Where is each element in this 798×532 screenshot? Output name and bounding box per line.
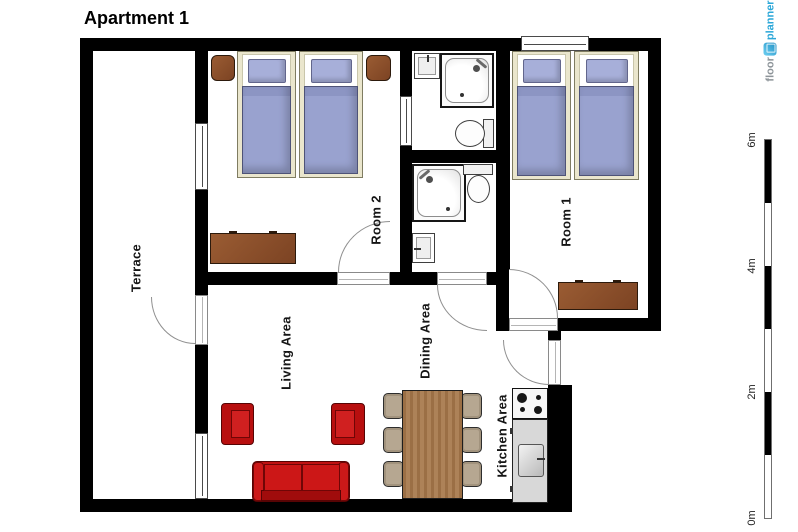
dining-chair [383, 461, 404, 487]
entry-door [548, 340, 561, 385]
single-bed [512, 51, 571, 180]
wall-terrace-3 [195, 345, 208, 433]
dresser-knob [229, 231, 237, 234]
single-bed [299, 51, 363, 178]
seat-cushion [264, 464, 302, 491]
cabinet-handle [510, 486, 513, 492]
ruler-segment [765, 455, 771, 518]
ruler-segment [765, 329, 771, 392]
seat-cushion [231, 410, 250, 438]
window-terrace-lower [195, 433, 208, 499]
door-swing-arc [503, 340, 549, 385]
seat-cushion [302, 464, 340, 491]
terrace-label: Terrace [129, 244, 144, 292]
mattress [579, 54, 634, 176]
sofa-back [261, 490, 341, 501]
dresser [558, 282, 638, 310]
faucet [537, 458, 545, 460]
pillow [311, 59, 353, 83]
armchair [221, 403, 254, 445]
ruler-segment [765, 140, 771, 203]
kitchen-sink [518, 444, 544, 477]
stove [512, 388, 548, 419]
shower-head-icon [473, 65, 480, 72]
kitchen-area-label: Kitchen Area [495, 394, 510, 477]
wall-room1-bottom-right [558, 318, 661, 331]
window-room1 [521, 36, 589, 51]
bathroom-sink [412, 233, 435, 263]
dining-area-label: Dining Area [418, 303, 433, 379]
dresser-knob [613, 280, 621, 283]
blanket [304, 86, 358, 174]
room1-door [509, 318, 558, 331]
shower-head-icon [426, 176, 433, 183]
dining-table [402, 390, 463, 499]
bathroom2-door [437, 272, 487, 285]
dining-chair [383, 393, 404, 419]
ruler-label-4m: 4m [746, 258, 758, 273]
floorplanner-logo[interactable]: floor planner [749, 8, 791, 74]
nightstand [366, 55, 391, 81]
mattress [242, 54, 291, 174]
wall-hall-2 [390, 272, 437, 285]
wall-terrace-1 [195, 51, 208, 123]
logo-text-floor: floor [764, 57, 776, 81]
seat-cushion [335, 410, 355, 438]
dresser [210, 233, 296, 264]
drain [460, 93, 464, 97]
wall-entry-stub [548, 331, 561, 340]
dining-chair [461, 393, 482, 419]
blanket [579, 86, 634, 176]
scale-ruler [764, 139, 772, 519]
nightstand [211, 55, 235, 81]
window-bathroom1 [400, 96, 412, 146]
living-area-label: Living Area [279, 316, 294, 390]
ruler-segment [765, 203, 771, 266]
wall-bath-right [496, 38, 510, 331]
ruler-label-6m: 6m [746, 132, 758, 147]
ruler-label-0m: 0m [746, 510, 758, 525]
faucet [427, 55, 429, 62]
room2-door [337, 272, 390, 285]
pillow [523, 59, 561, 83]
toilet [467, 175, 490, 203]
shower [412, 164, 466, 222]
bathroom-sink [414, 53, 440, 79]
wall-left [80, 38, 93, 512]
terrace-door [195, 295, 208, 345]
blanket [517, 86, 566, 176]
blanket [242, 86, 291, 174]
kitchen-counter [512, 419, 548, 503]
room2-label: Room 2 [369, 195, 384, 244]
room1-label: Room 1 [559, 197, 574, 246]
door-swing-arc [151, 297, 195, 344]
toilet-tank [463, 164, 493, 175]
wall-right-upper [648, 38, 661, 331]
armchair [331, 403, 365, 445]
wall-hall-1 [195, 272, 337, 285]
burner [534, 406, 542, 414]
floorplan-canvas: Apartment 1 floor planner [0, 0, 798, 532]
pillow [586, 59, 628, 83]
sofa [252, 461, 350, 502]
door-swing-arc [437, 285, 487, 331]
single-bed [237, 51, 296, 178]
dresser-knob [575, 280, 583, 283]
page-title: Apartment 1 [84, 8, 189, 29]
wall-bath-left-2 [400, 146, 412, 272]
shower [440, 53, 494, 108]
pillow [248, 59, 286, 83]
burner [517, 393, 527, 403]
floorplanner-icon [764, 42, 777, 55]
mattress [517, 54, 566, 176]
wall-bath-left-1 [400, 51, 412, 96]
faucet [414, 248, 421, 250]
ruler-segment [765, 266, 771, 329]
ruler-segment [765, 392, 771, 455]
dining-chair [383, 427, 404, 453]
dresser-knob [269, 231, 277, 234]
dining-chair [461, 461, 482, 487]
cabinet-handle [510, 428, 513, 434]
burner [536, 395, 541, 400]
drain [446, 207, 450, 211]
single-bed [574, 51, 639, 180]
door-swing-arc [509, 269, 558, 318]
logo-text-planner: planner [764, 0, 776, 40]
burner [520, 407, 525, 412]
dining-chair [461, 427, 482, 453]
mattress [304, 54, 358, 174]
toilet [455, 120, 485, 147]
wall-kitchen-right [548, 385, 572, 512]
ruler-label-2m: 2m [746, 384, 758, 399]
window-terrace-upper [195, 123, 208, 190]
wall-bath-divider [400, 150, 510, 163]
